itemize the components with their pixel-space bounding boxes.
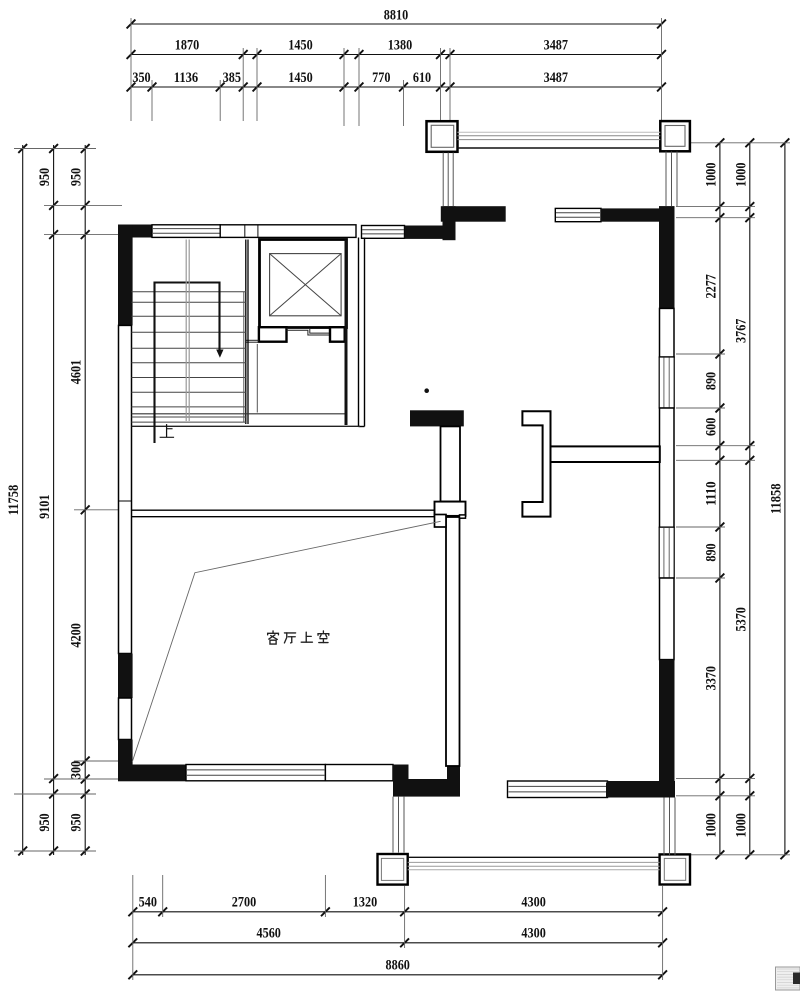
svg-text:1380: 1380 (388, 38, 412, 54)
svg-text:1110: 1110 (703, 481, 719, 505)
svg-text:4300: 4300 (521, 926, 545, 942)
svg-text:2700: 2700 (232, 895, 256, 911)
svg-text:1870: 1870 (175, 38, 199, 54)
svg-text:4560: 4560 (257, 926, 281, 942)
svg-text:770: 770 (372, 70, 390, 86)
svg-text:8810: 8810 (384, 8, 408, 24)
svg-text:1450: 1450 (288, 38, 312, 54)
svg-text:8860: 8860 (386, 958, 410, 974)
svg-text:1000: 1000 (703, 162, 719, 186)
svg-text:4300: 4300 (521, 895, 545, 911)
svg-text:540: 540 (139, 895, 157, 911)
svg-text:950: 950 (69, 813, 85, 831)
svg-text:11758: 11758 (6, 485, 22, 516)
svg-text:9101: 9101 (37, 495, 53, 519)
svg-text:950: 950 (37, 813, 53, 831)
svg-text:11858: 11858 (768, 484, 784, 515)
svg-text:350: 350 (132, 70, 150, 86)
svg-text:3767: 3767 (733, 318, 749, 343)
svg-text:5370: 5370 (733, 607, 749, 631)
svg-text:1450: 1450 (288, 70, 312, 86)
svg-text:1136: 1136 (174, 70, 199, 86)
svg-text:3487: 3487 (544, 38, 569, 54)
svg-text:3370: 3370 (703, 666, 719, 690)
svg-text:2277: 2277 (703, 274, 719, 299)
svg-text:1000: 1000 (733, 813, 749, 837)
svg-text:600: 600 (703, 418, 719, 436)
svg-text:610: 610 (413, 70, 431, 86)
svg-text:300: 300 (69, 761, 85, 779)
svg-text:890: 890 (703, 372, 719, 390)
svg-text:1000: 1000 (703, 813, 719, 837)
svg-text:4601: 4601 (69, 360, 85, 384)
svg-text:1320: 1320 (353, 895, 377, 911)
svg-text:385: 385 (223, 70, 241, 86)
svg-text:4200: 4200 (69, 623, 85, 647)
svg-text:3487: 3487 (544, 70, 569, 86)
svg-text:950: 950 (37, 168, 53, 186)
svg-text:890: 890 (703, 543, 719, 561)
svg-text:950: 950 (69, 168, 85, 186)
svg-text:1000: 1000 (733, 162, 749, 186)
